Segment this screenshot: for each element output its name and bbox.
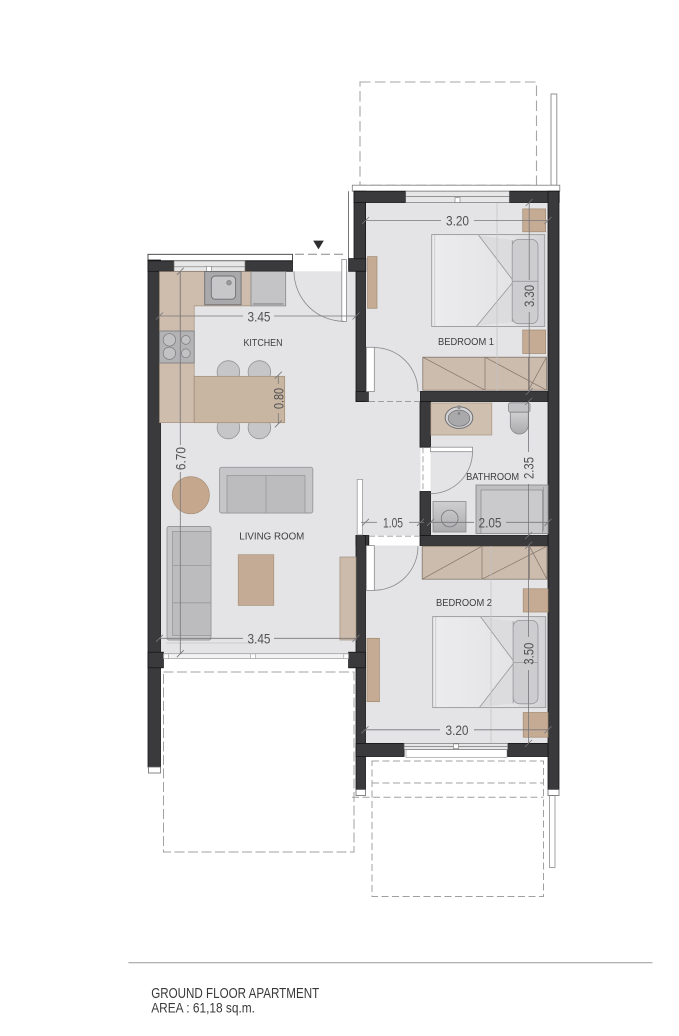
svg-text:3.30: 3.30 <box>521 285 537 307</box>
svg-text:6.70: 6.70 <box>172 447 188 470</box>
svg-text:0.80: 0.80 <box>270 388 286 409</box>
svg-text:BEDROOM 2: BEDROOM 2 <box>436 597 492 609</box>
svg-text:BATHROOM: BATHROOM <box>466 471 519 483</box>
svg-text:AREA : 61,18 sq.m.: AREA : 61,18 sq.m. <box>151 1000 255 1016</box>
svg-text:LIVING ROOM: LIVING ROOM <box>239 531 304 543</box>
svg-text:3.45: 3.45 <box>248 631 271 647</box>
svg-text:KITCHEN: KITCHEN <box>244 337 283 349</box>
svg-text:3.20: 3.20 <box>446 213 469 229</box>
svg-text:2.05: 2.05 <box>479 515 502 531</box>
svg-text:2.35: 2.35 <box>521 457 537 479</box>
svg-text:3.45: 3.45 <box>248 308 271 324</box>
svg-text:3.20: 3.20 <box>446 722 469 738</box>
svg-text:1.05: 1.05 <box>383 515 403 531</box>
svg-text:BEDROOM 1: BEDROOM 1 <box>438 336 494 348</box>
svg-text:3.50: 3.50 <box>521 643 537 665</box>
